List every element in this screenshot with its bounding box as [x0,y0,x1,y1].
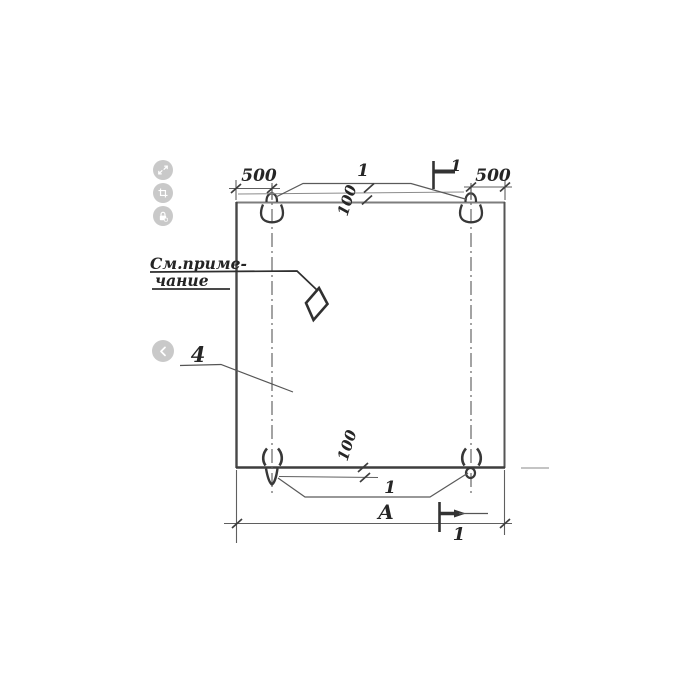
dimension-100-bottom: 100 [279,427,378,482]
note-callout: См.приме- чание [150,254,328,320]
loop-centerlines [272,185,471,497]
dimension-500-right: 500 [464,166,512,200]
dim-100-top-label: 100 [334,182,361,218]
section-mark-top-label: 1 [450,156,461,175]
panel-outline [236,202,505,468]
dim-500-left-label: 500 [241,166,277,186]
technical-drawing: 500 500 1 100 1 [0,0,700,700]
callout-loops-bottom-label: 1 [384,478,396,498]
callout-item-4-label: 4 [191,342,206,367]
dim-100-bottom-label: 100 [334,427,361,463]
dimension-overall-width: А [224,470,512,543]
dim-500-right-label: 500 [475,166,511,186]
dimension-500-left: 500 [229,166,280,200]
section-mark-bottom-label: 1 [453,524,466,545]
section-mark-top: 1 [433,156,462,189]
dimension-100-top: 100 [334,182,374,218]
note-line2: чание [155,271,209,290]
dim-overall-width-label: А [376,500,394,524]
callout-loops-top-label: 1 [357,161,369,181]
image-viewer: 500 500 1 100 1 [0,0,700,700]
diamond-mark [306,288,328,320]
